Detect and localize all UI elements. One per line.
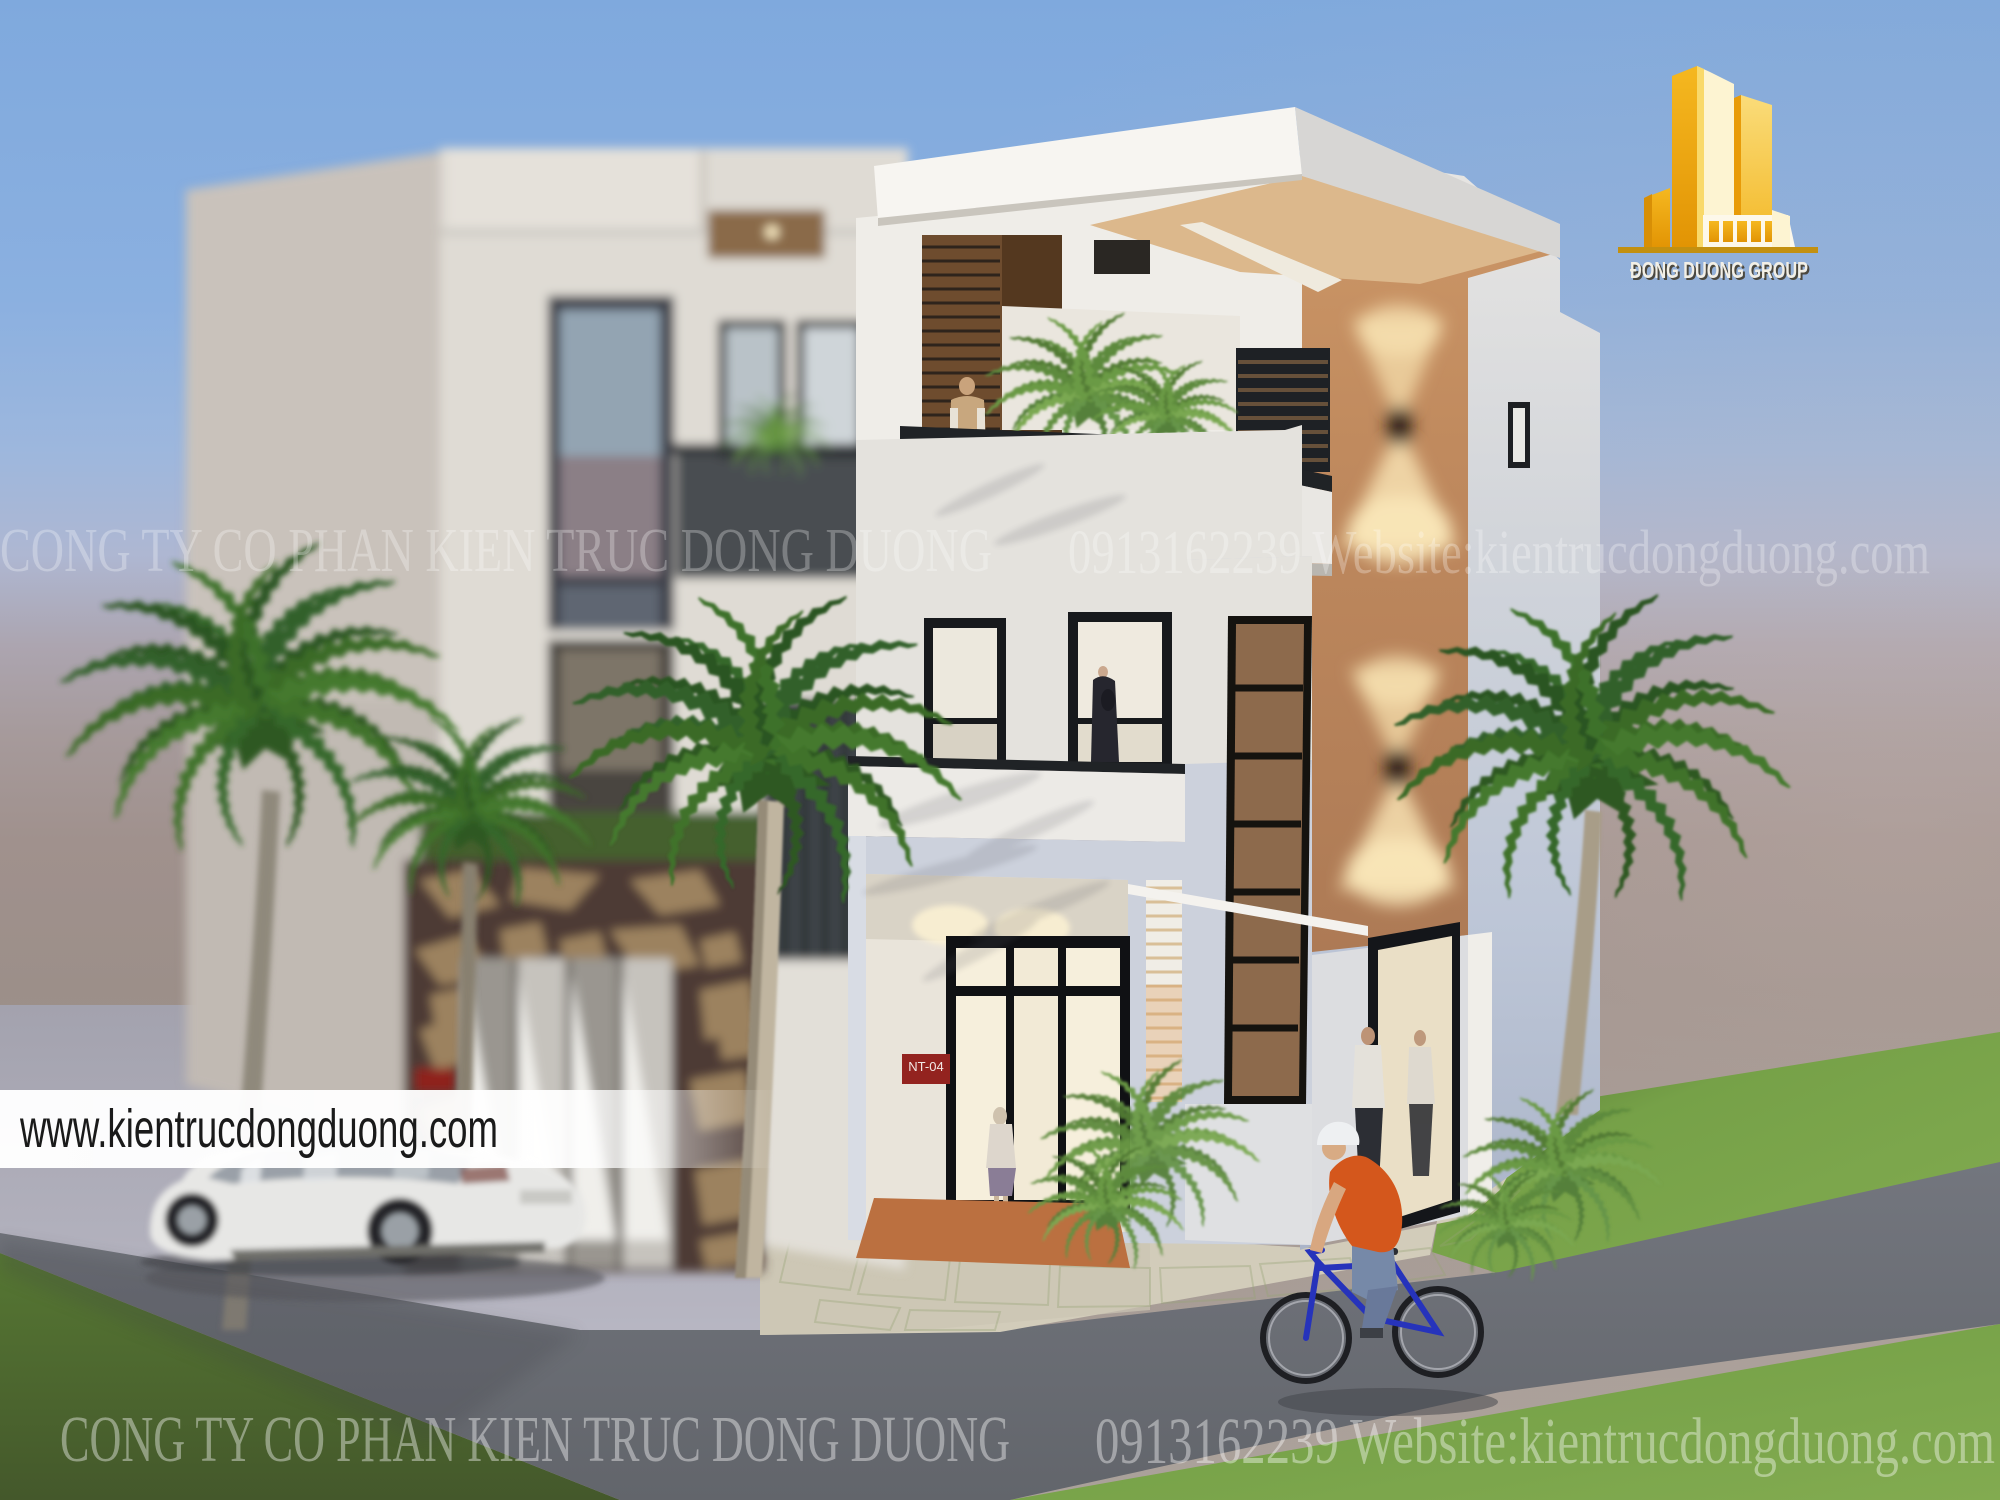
svg-text:NT-04: NT-04 xyxy=(908,1059,943,1074)
svg-text:ĐONG DUONG GROUP: ĐONG DUONG GROUP xyxy=(1630,257,1808,283)
svg-text:CONG TY CO PHAN KIEN TRUC DONG: CONG TY CO PHAN KIEN TRUC DONG DUONG xyxy=(0,517,992,585)
svg-text:www.kientrucdongduong.com: www.kientrucdongduong.com xyxy=(19,1099,498,1159)
svg-text:0913162239 Website:kientrucdo: 0913162239 Website:kientrucdongduong.com xyxy=(1095,1405,1995,1478)
svg-text:CONG TY CO PHAN KIEN TRUC DONG: CONG TY CO PHAN KIEN TRUC DONG DUONG xyxy=(60,1403,1010,1476)
svg-text:0913162239 Website:kientrucdo: 0913162239 Website:kientrucdongduong.com xyxy=(1068,519,1930,587)
